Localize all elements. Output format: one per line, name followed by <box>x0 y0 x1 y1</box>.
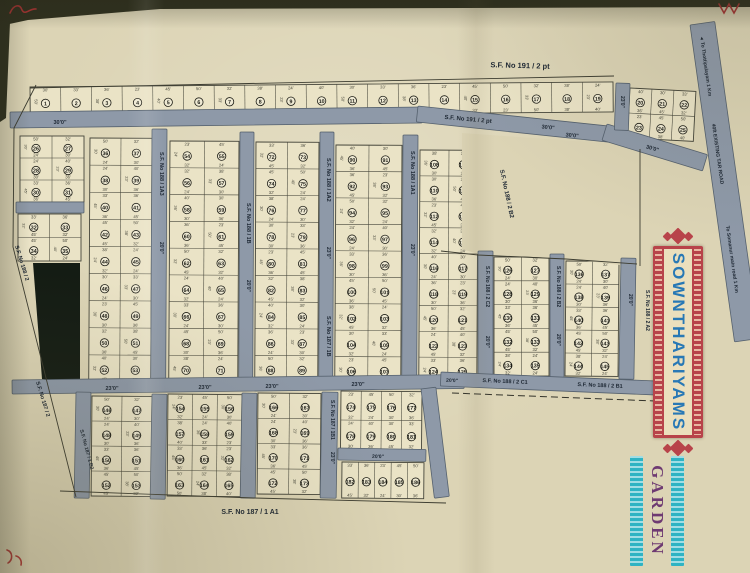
plot-dim: 32' <box>602 348 608 353</box>
plot-number: 98 <box>349 264 355 270</box>
plot-dim: 36' <box>350 172 356 177</box>
plot-dim: 45' <box>270 469 276 474</box>
plot-dim: 23' <box>279 97 284 102</box>
plot-number: 75 <box>300 182 306 188</box>
plot-number: 50 <box>101 341 107 347</box>
plot-dim: 40' <box>680 135 686 140</box>
plot-number: 120 <box>429 318 438 324</box>
plot-dim: 45' <box>259 259 264 264</box>
plot-dim: 45' <box>423 316 428 321</box>
plot-dim: 23' <box>184 142 190 147</box>
plot-dim: 36' <box>413 493 419 498</box>
plot-dim: 30' <box>102 274 108 279</box>
plot-number: 169 <box>300 431 309 437</box>
plot-dim: 24' <box>339 209 344 214</box>
plot-dim: 30' <box>95 406 100 411</box>
plot-dim: 36' <box>300 243 306 248</box>
plot-dim: 32' <box>133 241 139 246</box>
plot-number: 45 <box>133 260 139 266</box>
plot-dim: 38' <box>432 151 438 156</box>
plot-dim: 38' <box>95 99 100 104</box>
plot-dim: 38' <box>451 342 456 347</box>
plot-dim: 45' <box>102 220 108 225</box>
plot-number: 118 <box>429 292 438 298</box>
plot-number: 14 <box>441 98 447 104</box>
plot-dim: 50' <box>382 278 388 283</box>
plot-number: 146 <box>102 408 111 414</box>
survey-label: S.F. No 188 / 2 C2 <box>484 266 490 307</box>
plot-dim: 24' <box>259 313 264 318</box>
plot-dim: 23' <box>349 357 355 362</box>
plot-block: 13650'24'30'13732'30'13824'30'13940'36'2… <box>565 261 619 376</box>
plot-dim: 50' <box>349 199 355 204</box>
plot-number: 101 <box>380 290 389 296</box>
plot-dim: 23' <box>637 114 643 119</box>
plot-dim: 30' <box>432 171 438 176</box>
plot-dim: 24' <box>300 196 306 201</box>
plot-dim: 38' <box>658 134 664 139</box>
plot-dim: 50' <box>302 470 308 475</box>
plot-number: 148 <box>102 433 111 439</box>
plot-dim: 40' <box>156 98 161 103</box>
plot-dim: 33' <box>271 444 277 449</box>
plot-number: 91 <box>382 158 388 164</box>
survey-label: 30'0" <box>541 124 555 131</box>
plot-dim: 38' <box>124 230 129 235</box>
plot-dim: 36' <box>409 415 415 420</box>
plot-number: 61 <box>218 234 224 240</box>
plot-number: 175 <box>367 405 376 411</box>
plot-dim: 40' <box>291 180 296 185</box>
plot-number: 40 <box>102 205 108 211</box>
plot-number: 10 <box>319 99 325 105</box>
plot-number: 180 <box>387 434 396 440</box>
plot-dim: 50' <box>505 258 511 263</box>
plot-dim: 32' <box>300 163 306 168</box>
plot-dim: 45' <box>24 188 29 193</box>
plot-dim: 30' <box>227 415 233 420</box>
banner-ornament-top-icon <box>664 226 692 246</box>
plot-dim: 24' <box>368 415 374 420</box>
plot-dim: 50' <box>207 232 212 237</box>
plot-block: 2650'24'30'2732'30'2824'30'2940'36'23'30… <box>20 136 84 202</box>
survey-label: 23'0" <box>351 382 364 388</box>
plot-number: 78 <box>268 235 274 241</box>
plot-block: 16650'24'30'16732'30'16824'30'16940'36'2… <box>257 393 321 495</box>
plot-block: 14650'24'30'14732'30'14824'30'14940'36'2… <box>91 396 152 497</box>
plot-number: 130 <box>503 316 512 322</box>
plot-dim: 32' <box>227 86 233 91</box>
plot-number: 20 <box>637 100 643 106</box>
plot-dim: 33' <box>380 84 386 89</box>
plot-dim: 50' <box>184 249 190 254</box>
plot-number: 83 <box>299 288 305 294</box>
plot-number: 147 <box>132 408 141 414</box>
plot-dim: 23' <box>293 429 298 434</box>
plot-number: 103 <box>380 317 389 323</box>
plot-dim: 30' <box>261 403 266 408</box>
plot-number: 57 <box>219 181 225 187</box>
plot-dim: 45' <box>172 366 177 371</box>
plot-dim: 24' <box>602 371 608 376</box>
plot-number: 123 <box>458 344 467 350</box>
plot-dim: 45' <box>184 270 190 275</box>
plot-number: 152 <box>102 483 111 489</box>
plot-dim: 30' <box>271 438 277 443</box>
plot-dim: 36' <box>134 441 140 446</box>
plot-dim: 30' <box>134 416 140 421</box>
plot-dim: 32' <box>184 168 190 173</box>
plot-dim: 45' <box>93 203 98 208</box>
plot-number: 1 <box>44 101 47 107</box>
plot-block: 3650'24'30'3732'30'3824'30'3940'36'23'40… <box>89 138 152 382</box>
plot-dim: 30' <box>133 295 139 300</box>
plot-dim: 45' <box>268 297 274 302</box>
plot-dim: 40' <box>533 281 539 286</box>
survey-label: S.F. No 188 / 1A1 <box>409 151 415 195</box>
survey-label: 20'0" <box>245 280 251 293</box>
plot-number: 35 <box>62 249 68 255</box>
plot-number: 23 <box>636 125 642 131</box>
plot-dim: 33' <box>269 143 275 148</box>
plot-dim: 36' <box>93 312 98 317</box>
plot-dim: 23' <box>226 440 232 445</box>
plot-number: 137 <box>601 272 610 278</box>
plot-number: 16 <box>503 97 509 103</box>
plot-dim: 40' <box>226 491 232 496</box>
plot-dim: 24' <box>63 256 69 261</box>
survey-label: 23'0" <box>198 385 211 391</box>
plot-number: 132 <box>503 340 512 346</box>
plot-dim: 50' <box>340 97 345 102</box>
plot-dim: 23' <box>431 202 437 207</box>
plot-dim: 45' <box>505 347 511 352</box>
plot-dim: 33' <box>347 463 353 468</box>
plot-dim: 36' <box>33 197 39 202</box>
plot-dim: 50' <box>300 169 306 174</box>
plot-dim: 45' <box>659 109 665 114</box>
plot-dim: 38' <box>269 196 275 201</box>
plot-number: 182 <box>346 480 355 486</box>
survey-label: 20'0" <box>446 378 459 385</box>
plot-dim: 38' <box>201 491 207 496</box>
plot-dim: 32' <box>220 456 225 461</box>
plot-dim: 38' <box>183 356 189 361</box>
plot-dim: 30' <box>460 274 466 279</box>
plot-dim: 33' <box>382 331 388 336</box>
plot-dim: 32' <box>382 199 388 204</box>
plot-dim: 36' <box>533 299 539 304</box>
plot-number: 63 <box>218 261 224 267</box>
plot-number: 134 <box>503 364 512 370</box>
plot-dim: 32' <box>202 471 208 476</box>
plot-dim: 45' <box>133 214 139 219</box>
plot-dim: 50' <box>133 220 139 225</box>
plot-number: 165 <box>224 483 233 489</box>
survey-label: 23'0" <box>619 96 625 109</box>
plot-dim: 40' <box>302 419 308 424</box>
plot-number: 8 <box>259 99 262 105</box>
plot-dim: 50' <box>533 329 539 334</box>
survey-label: 20'0" <box>372 454 385 460</box>
plot-dim: 36' <box>219 216 225 221</box>
plot-block: 18233'45'18336'32'18423'24'18545'30'1865… <box>342 462 424 499</box>
plot-number: 127 <box>531 268 540 274</box>
plot-dim: 45' <box>431 352 437 357</box>
plot-number: 143 <box>601 341 610 347</box>
plot-dim: 32' <box>534 83 540 88</box>
plot-dim: 36' <box>368 444 374 449</box>
plot-dim: 30' <box>505 299 511 304</box>
plot-dim: 40' <box>431 254 437 259</box>
plot-dim: 24' <box>300 323 306 328</box>
plot-number: 25 <box>680 128 686 134</box>
plot-number: 151 <box>132 458 141 464</box>
plot-dim: 30' <box>300 303 306 308</box>
banner-border-pattern-icon <box>655 249 662 435</box>
plot-dim: 24' <box>218 297 224 302</box>
plot-number: 3 <box>105 101 108 107</box>
plot-dim: 38' <box>133 329 139 334</box>
plot-dim: 40' <box>595 107 601 112</box>
banner-border-pattern-icon <box>694 249 701 435</box>
plot-dim: 36' <box>218 350 224 355</box>
plot-dim: 50' <box>534 107 540 112</box>
dark-grove-area <box>33 263 80 384</box>
plot-dim: 50' <box>196 86 202 91</box>
plot-number: 39 <box>133 178 139 184</box>
plot-number: 122 <box>429 344 438 350</box>
plot-block: 17423'32'17545'24'17650'30'17732'36'1782… <box>340 391 422 450</box>
plot-dim: 24' <box>202 414 208 419</box>
plot-dim: 30' <box>432 177 438 182</box>
plot-number: 71 <box>218 368 224 374</box>
road <box>16 202 84 213</box>
plot-dim: 50' <box>452 186 457 191</box>
plot-dim: 24' <box>576 285 582 290</box>
plot-dim: 36' <box>268 270 274 275</box>
plot-number: 136 <box>575 272 584 278</box>
plot-dim: 45' <box>347 493 353 498</box>
plot-dim: 24' <box>498 361 503 366</box>
plot-dim: 32' <box>65 137 71 142</box>
plot-number: 170 <box>269 456 278 462</box>
plot-number: 140 <box>574 318 583 324</box>
plot-block: 15423'32'24'15545'24'15650'30'30'15738'4… <box>167 394 242 497</box>
plot-number: 95 <box>382 211 388 217</box>
plot-dim: 32' <box>349 351 355 356</box>
plot-dim: 33' <box>409 421 415 426</box>
plot-dim: 32' <box>22 223 27 228</box>
plot-dim: 24' <box>595 83 601 88</box>
plot-dim: 24' <box>133 247 139 252</box>
plot-number: 46 <box>102 287 108 293</box>
plot-dim: 38' <box>219 169 225 174</box>
plot-dim: 45' <box>602 325 608 330</box>
plot-dim: 33' <box>124 285 129 290</box>
plot-number: 13 <box>411 98 417 104</box>
plot-number: 131 <box>531 316 540 322</box>
plot-dim: 38' <box>102 247 108 252</box>
plot-dim: 24' <box>33 159 39 164</box>
garden-border-left-icon <box>630 456 643 566</box>
survey-label: 30'0" <box>53 120 66 126</box>
plot-number: 96 <box>349 237 355 243</box>
plot-number: 81 <box>300 262 306 268</box>
plot-dim: 36' <box>258 366 263 371</box>
plot-number: 67 <box>218 315 224 321</box>
plot-dim: 36' <box>382 272 388 277</box>
plot-dim: 30' <box>218 323 224 328</box>
plot-number: 77 <box>300 208 306 214</box>
plot-dim: 24' <box>380 493 386 498</box>
plot-dim: 24' <box>218 356 224 361</box>
plot-dim: 30' <box>102 322 108 327</box>
plot-dim: 24' <box>202 420 208 425</box>
plot-dim: 32' <box>268 323 274 328</box>
plot-number: 4 <box>136 101 139 107</box>
plot-dim: 45' <box>133 301 139 306</box>
plot-dim: 36' <box>302 444 308 449</box>
plot-number: 22 <box>681 103 687 109</box>
plot-dim: 45' <box>218 243 224 248</box>
plot-dim: 45' <box>269 163 275 168</box>
road <box>239 132 254 385</box>
plot-dim: 36' <box>505 323 511 328</box>
plot-number: 62 <box>184 261 190 267</box>
plot-number: 84 <box>268 315 274 321</box>
plot-block: 3233'45'32'3336'32'3445'32'3550'24'40' <box>18 214 81 261</box>
plot-dim: 23' <box>226 446 232 451</box>
plot-dim: 24' <box>569 362 574 367</box>
plot-dim: 24' <box>33 153 39 158</box>
plot-dim: 30' <box>423 264 428 269</box>
plot-dim: 32' <box>431 228 437 233</box>
plot-dim: 24' <box>271 419 277 424</box>
plot-number: 114 <box>430 240 439 246</box>
plot-dim: 23' <box>348 392 354 397</box>
plot-dim: 32' <box>269 190 275 195</box>
plot-dim: 32' <box>460 352 466 357</box>
plot-dim: 23' <box>125 431 130 436</box>
plot-dim: 24' <box>173 152 178 157</box>
plot-dim: 36' <box>431 196 437 201</box>
plot-dim: 36' <box>431 280 437 285</box>
plot-dim: 33' <box>73 87 79 92</box>
survey-label: 23'0" <box>265 384 278 390</box>
plot-number: 2 <box>75 101 78 107</box>
plot-dim: 36' <box>102 350 108 355</box>
plot-number: 155 <box>200 407 209 413</box>
plot-number: 92 <box>349 184 355 190</box>
survey-label: S.F. No 188 / 1A3 <box>158 152 164 196</box>
plot-dim: 32' <box>102 268 108 273</box>
plot-dim: 32' <box>31 256 37 261</box>
plot-dim: 24' <box>349 225 355 230</box>
plot-number: 112 <box>430 214 439 220</box>
plot-number: 48 <box>102 314 108 320</box>
plot-dim: 36' <box>177 465 183 470</box>
plot-dim: 30' <box>576 302 582 307</box>
plot-dim: 45' <box>498 314 503 319</box>
plot-number: 9 <box>289 99 292 105</box>
plot-dim: 33' <box>102 193 108 198</box>
plot-dim: 30' <box>259 206 264 211</box>
plot-number: 80 <box>268 262 274 268</box>
plot-dim: 30' <box>349 85 355 90</box>
plot-block: 9040'36'45'9130'45'9236'45'9323'32'38'94… <box>335 145 402 383</box>
plot-dim: 45' <box>576 331 582 336</box>
plot-number: 97 <box>382 237 388 243</box>
plot-dim: 45' <box>576 348 582 353</box>
plot-dim: 50' <box>389 392 395 397</box>
plot-number: 150 <box>102 458 111 464</box>
plot-dim: 23' <box>135 87 141 92</box>
boundary-dashed-line <box>452 393 655 401</box>
plot-dim: 36' <box>460 358 466 363</box>
plot-number: 33 <box>62 225 68 231</box>
plot-number: 76 <box>268 208 274 214</box>
plot-dim: 36' <box>302 438 308 443</box>
plot-dim: 45' <box>95 456 100 461</box>
plot-dim: 30' <box>134 160 140 165</box>
plot-dim: 40' <box>207 286 212 291</box>
plot-dim: 32' <box>302 394 308 399</box>
plot-dim: 45' <box>382 299 388 304</box>
plot-dim: 32' <box>92 366 97 371</box>
plot-dim: 32' <box>460 306 466 311</box>
plot-number: 149 <box>132 433 141 439</box>
plot-dim: 45' <box>270 489 276 494</box>
plot-dim: 30' <box>389 415 395 420</box>
plot-dim: 38' <box>564 83 570 88</box>
plot-number: 99 <box>382 264 388 270</box>
garden-border-right-icon <box>671 456 684 566</box>
plot-number: 34 <box>31 249 37 255</box>
plot-number: 185 <box>395 480 404 486</box>
plot-number: 52 <box>101 368 107 374</box>
plot-dim: 45' <box>300 249 306 254</box>
plot-dim: 30' <box>221 405 226 410</box>
plot-dim: 38' <box>525 338 530 343</box>
plot-dim: 40' <box>218 276 224 281</box>
plot-dim: 45' <box>533 323 539 328</box>
plot-dim: 38' <box>125 481 130 486</box>
plot-dim: 32' <box>423 212 428 217</box>
plot-number: 66 <box>183 315 189 321</box>
plot-dim: 23' <box>452 290 457 295</box>
plot-number: 65 <box>218 288 224 294</box>
plot-dim: 45' <box>505 329 511 334</box>
plot-dim: 30' <box>102 187 108 192</box>
plot-dim: 32' <box>184 296 190 301</box>
plot-dim: 30' <box>431 300 437 305</box>
plot-number: 41 <box>133 206 139 212</box>
plot-dim: 36' <box>364 463 370 468</box>
plot-dim: 23' <box>586 94 591 99</box>
plot-dim: 30' <box>173 312 178 317</box>
plot-dim: 38' <box>576 354 582 359</box>
plot-number: 94 <box>349 211 355 217</box>
plot-dim: 30' <box>349 331 355 336</box>
plot-dim: 24' <box>288 85 294 90</box>
plot-dim: 32' <box>349 219 355 224</box>
survey-label: S.F. No 191 / 2 pt <box>490 60 550 71</box>
plot-number: 82 <box>268 288 274 294</box>
plot-dim: 33' <box>133 274 139 279</box>
plot-dim: 33' <box>104 447 110 452</box>
plot-number: 56 <box>184 181 190 187</box>
